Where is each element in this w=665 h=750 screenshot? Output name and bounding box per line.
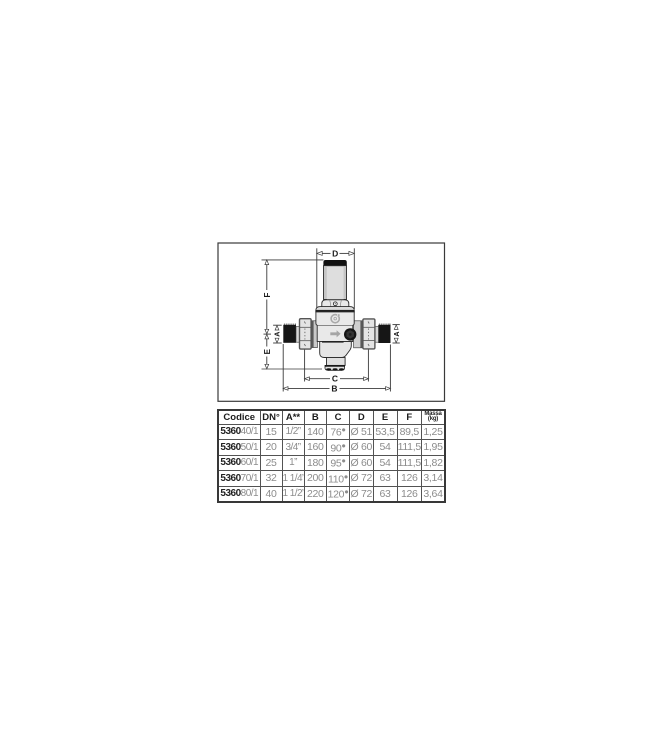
svg-text:C: C (332, 374, 338, 384)
svg-text:B: B (331, 383, 337, 393)
svg-text:A: A (392, 331, 401, 336)
svg-text:F: F (263, 292, 272, 297)
svg-text:E: E (263, 348, 272, 354)
svg-text:A: A (273, 332, 282, 337)
svg-text:D: D (332, 248, 338, 258)
